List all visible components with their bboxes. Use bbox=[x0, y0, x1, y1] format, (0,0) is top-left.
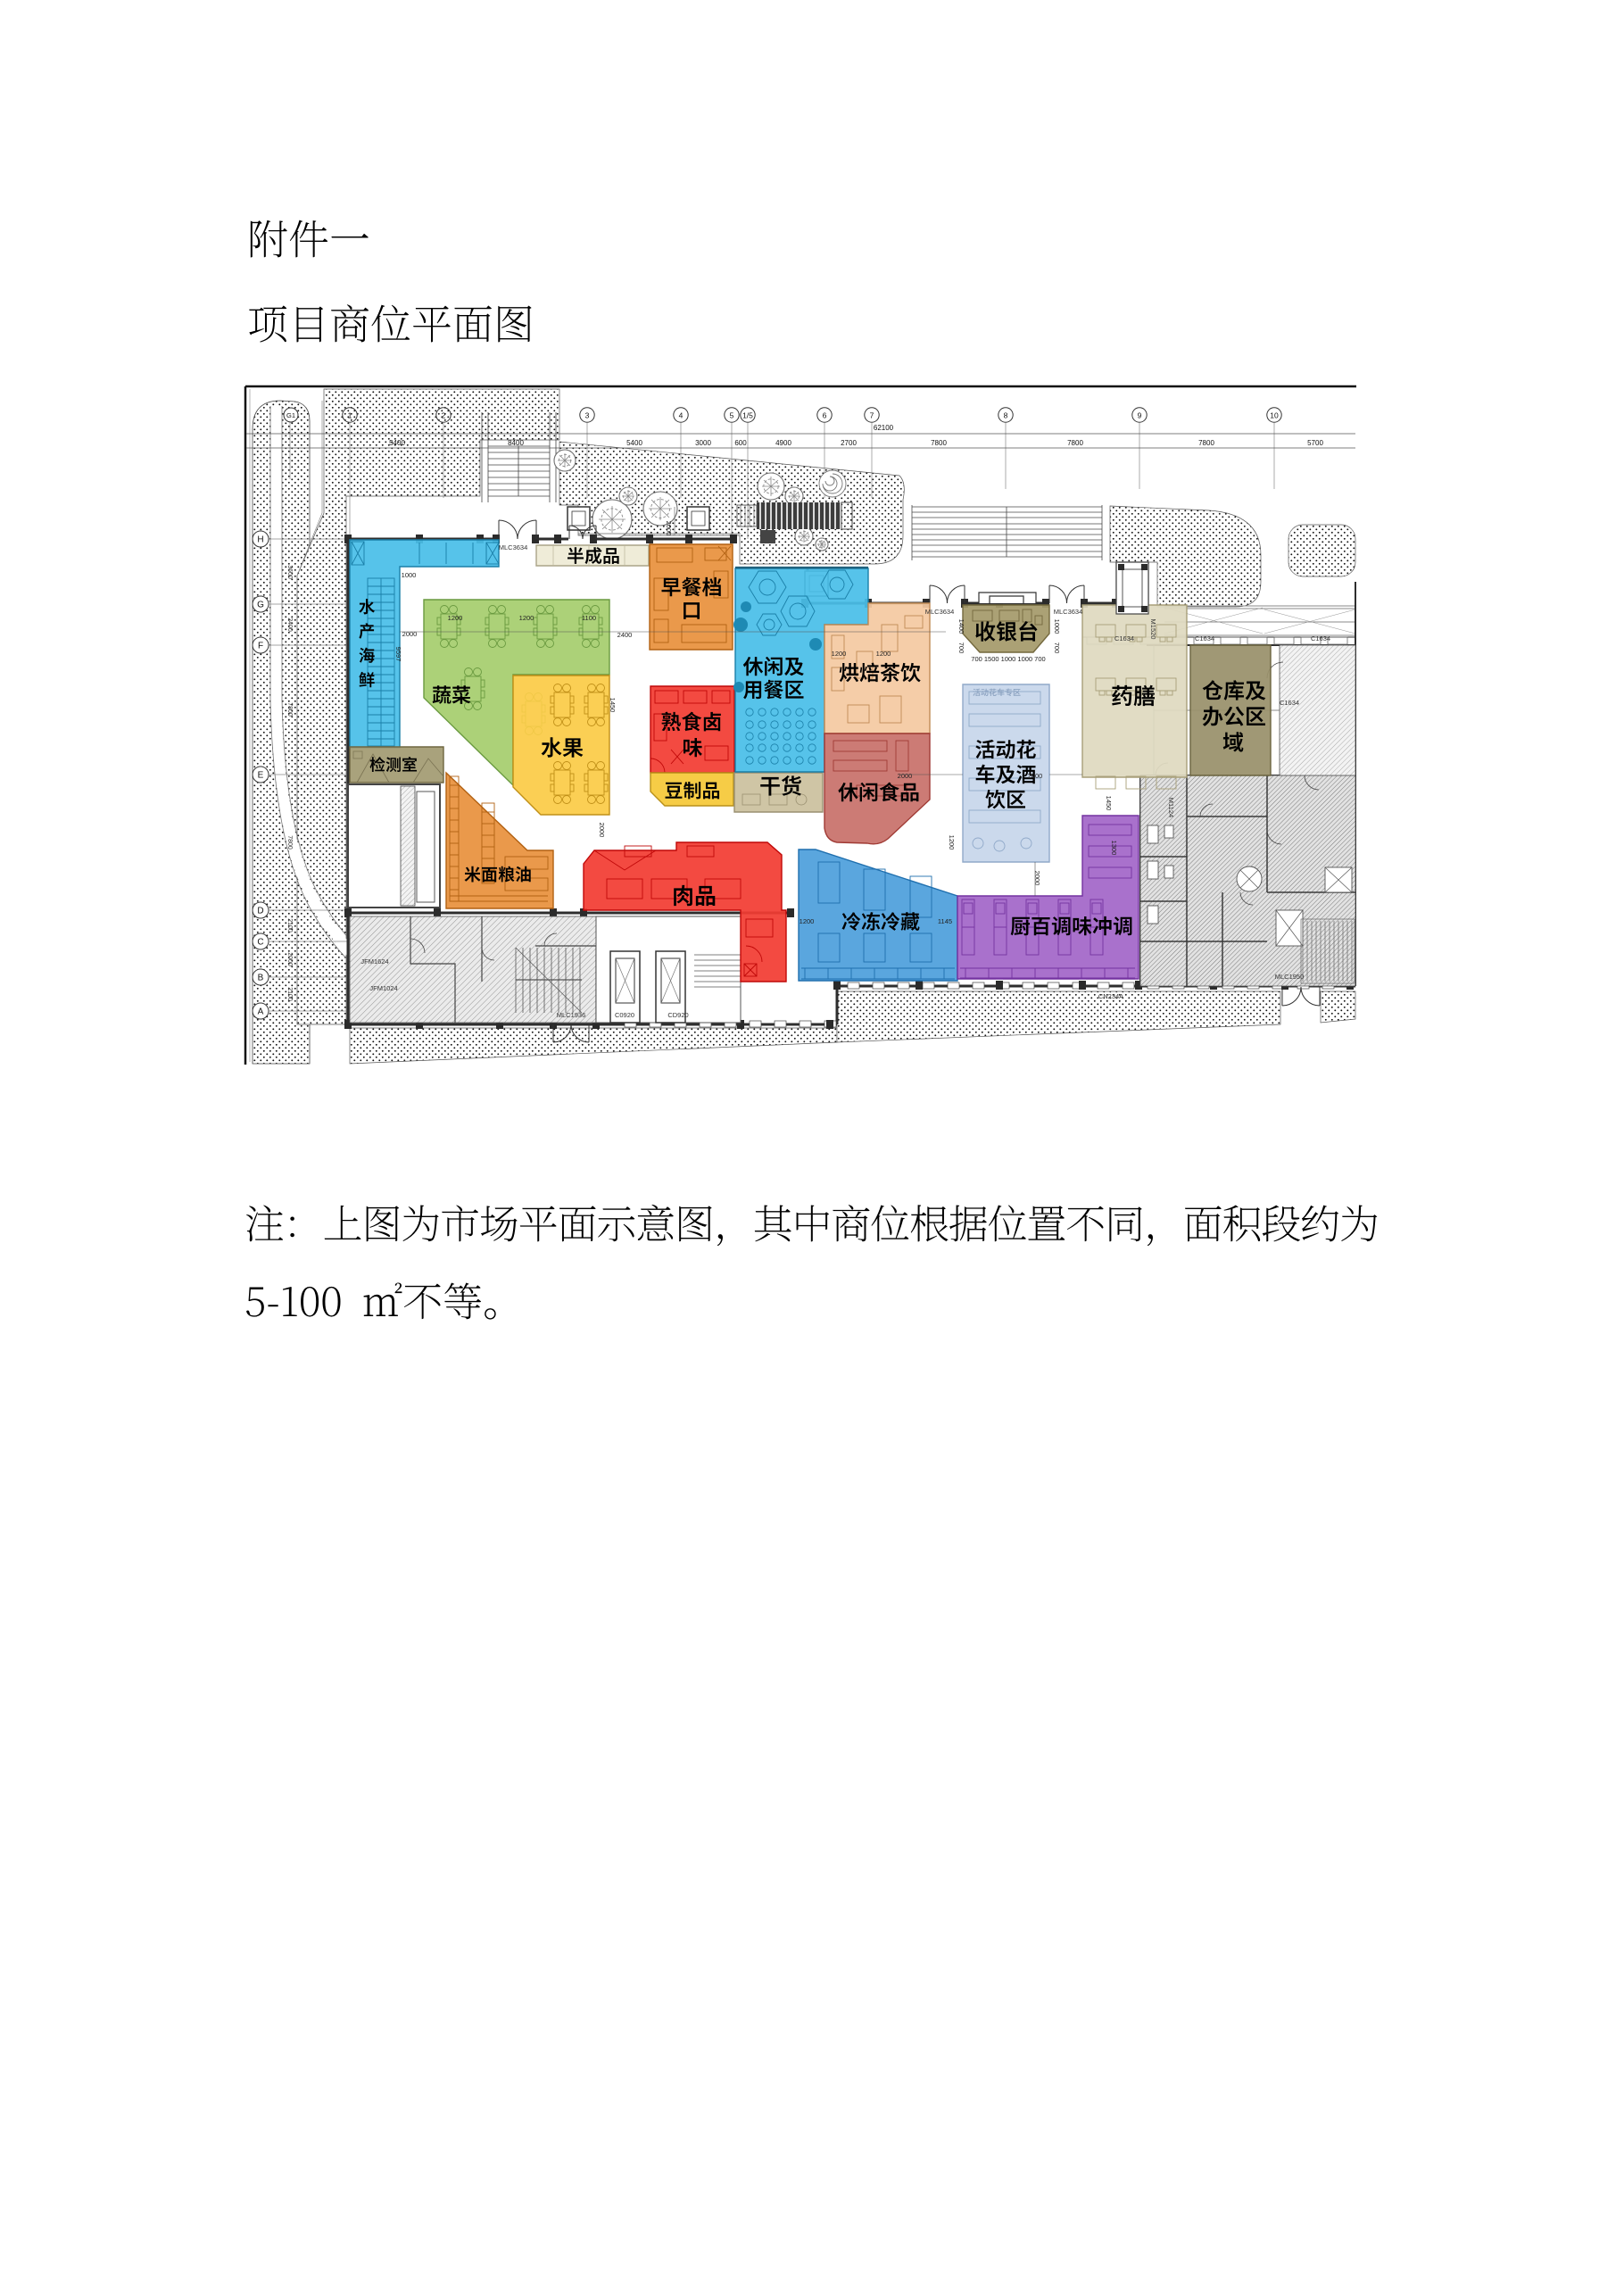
svg-text:1200: 1200 bbox=[832, 650, 847, 658]
svg-text:C1634: C1634 bbox=[1195, 634, 1214, 642]
svg-text:2: 2 bbox=[442, 411, 446, 420]
svg-text:JFM1024: JFM1024 bbox=[369, 984, 397, 992]
svg-text:9597: 9597 bbox=[394, 647, 402, 662]
svg-text:5400: 5400 bbox=[389, 439, 405, 447]
svg-text:D: D bbox=[257, 907, 263, 916]
svg-text:700 1500 1000 1000 700: 700 1500 1000 1000 700 bbox=[971, 655, 1045, 663]
svg-text:4900: 4900 bbox=[775, 439, 791, 447]
svg-text:MLC3634: MLC3634 bbox=[1054, 608, 1083, 616]
svg-text:2000: 2000 bbox=[598, 823, 606, 838]
svg-text:1200: 1200 bbox=[519, 614, 534, 622]
svg-text:8: 8 bbox=[1004, 411, 1008, 420]
svg-text:5700: 5700 bbox=[1307, 439, 1323, 447]
svg-text:G: G bbox=[257, 601, 264, 610]
svg-text:MLC1936: MLC1936 bbox=[557, 1011, 586, 1019]
svg-text:CN234A: CN234A bbox=[1098, 992, 1123, 1000]
svg-text:MLC3634: MLC3634 bbox=[499, 543, 528, 551]
svg-text:2100: 2100 bbox=[286, 987, 293, 1001]
svg-text:1450: 1450 bbox=[1105, 796, 1113, 811]
svg-text:700: 700 bbox=[957, 642, 965, 654]
svg-text:62100: 62100 bbox=[874, 424, 894, 432]
svg-text:2100: 2100 bbox=[286, 918, 293, 932]
svg-text:E: E bbox=[258, 771, 264, 781]
svg-text:2000: 2000 bbox=[1033, 871, 1041, 886]
svg-text:1100: 1100 bbox=[582, 614, 596, 622]
svg-text:CD920: CD920 bbox=[667, 1011, 688, 1019]
svg-text:2000: 2000 bbox=[402, 630, 418, 638]
svg-text:1200: 1200 bbox=[948, 835, 956, 850]
svg-text:1450: 1450 bbox=[609, 698, 617, 713]
svg-text:2000: 2000 bbox=[665, 521, 673, 536]
svg-text:1145: 1145 bbox=[938, 917, 952, 925]
svg-text:1000: 1000 bbox=[1053, 619, 1061, 634]
svg-text:JFM1624: JFM1624 bbox=[360, 957, 388, 966]
svg-text:2000: 2000 bbox=[286, 952, 293, 966]
svg-text:1300: 1300 bbox=[1110, 841, 1118, 856]
svg-text:G1: G1 bbox=[286, 411, 295, 419]
svg-text:7800: 7800 bbox=[931, 439, 947, 447]
svg-text:5400: 5400 bbox=[626, 439, 642, 447]
svg-text:3: 3 bbox=[585, 411, 590, 420]
svg-text:5: 5 bbox=[730, 411, 734, 420]
svg-text:C1634: C1634 bbox=[1311, 634, 1330, 642]
svg-text:MLC1950: MLC1950 bbox=[1275, 973, 1305, 981]
svg-text:MLC3634: MLC3634 bbox=[925, 608, 955, 616]
svg-text:3600: 3600 bbox=[286, 565, 293, 579]
svg-text:C0920: C0920 bbox=[615, 1011, 634, 1019]
svg-text:1200: 1200 bbox=[800, 917, 815, 925]
svg-text:7800: 7800 bbox=[286, 835, 293, 850]
svg-text:1200: 1200 bbox=[876, 650, 891, 658]
svg-text:1/5: 1/5 bbox=[742, 411, 753, 420]
svg-text:1000: 1000 bbox=[402, 571, 417, 579]
svg-text:9: 9 bbox=[1138, 411, 1142, 420]
svg-text:3000: 3000 bbox=[695, 439, 711, 447]
svg-text:1: 1 bbox=[348, 411, 352, 420]
svg-text:H: H bbox=[257, 535, 263, 545]
svg-text:C: C bbox=[257, 938, 263, 948]
svg-text:C1634: C1634 bbox=[1114, 634, 1134, 642]
svg-text:2000: 2000 bbox=[898, 772, 913, 780]
svg-text:1400: 1400 bbox=[957, 619, 965, 634]
svg-text:7800: 7800 bbox=[286, 702, 293, 717]
svg-text:2700: 2700 bbox=[841, 439, 857, 447]
svg-text:6: 6 bbox=[823, 411, 827, 420]
svg-text:7800: 7800 bbox=[1067, 439, 1083, 447]
svg-text:2400: 2400 bbox=[617, 631, 633, 639]
svg-text:2000: 2000 bbox=[1028, 772, 1043, 780]
svg-text:7: 7 bbox=[870, 411, 874, 420]
svg-text:F: F bbox=[258, 642, 263, 651]
svg-text:700: 700 bbox=[1053, 642, 1061, 654]
svg-text:C1634: C1634 bbox=[1280, 699, 1299, 707]
svg-text:M1520: M1520 bbox=[1149, 619, 1157, 640]
svg-text:A: A bbox=[258, 1007, 264, 1017]
svg-text:4: 4 bbox=[679, 411, 684, 420]
svg-text:B: B bbox=[258, 974, 264, 983]
svg-text:10: 10 bbox=[1270, 411, 1279, 420]
svg-text:2400: 2400 bbox=[286, 618, 293, 632]
svg-text:M1124: M1124 bbox=[1167, 798, 1175, 817]
svg-text:1200: 1200 bbox=[448, 614, 463, 622]
svg-text:600: 600 bbox=[734, 439, 747, 447]
svg-text:7800: 7800 bbox=[1198, 439, 1214, 447]
